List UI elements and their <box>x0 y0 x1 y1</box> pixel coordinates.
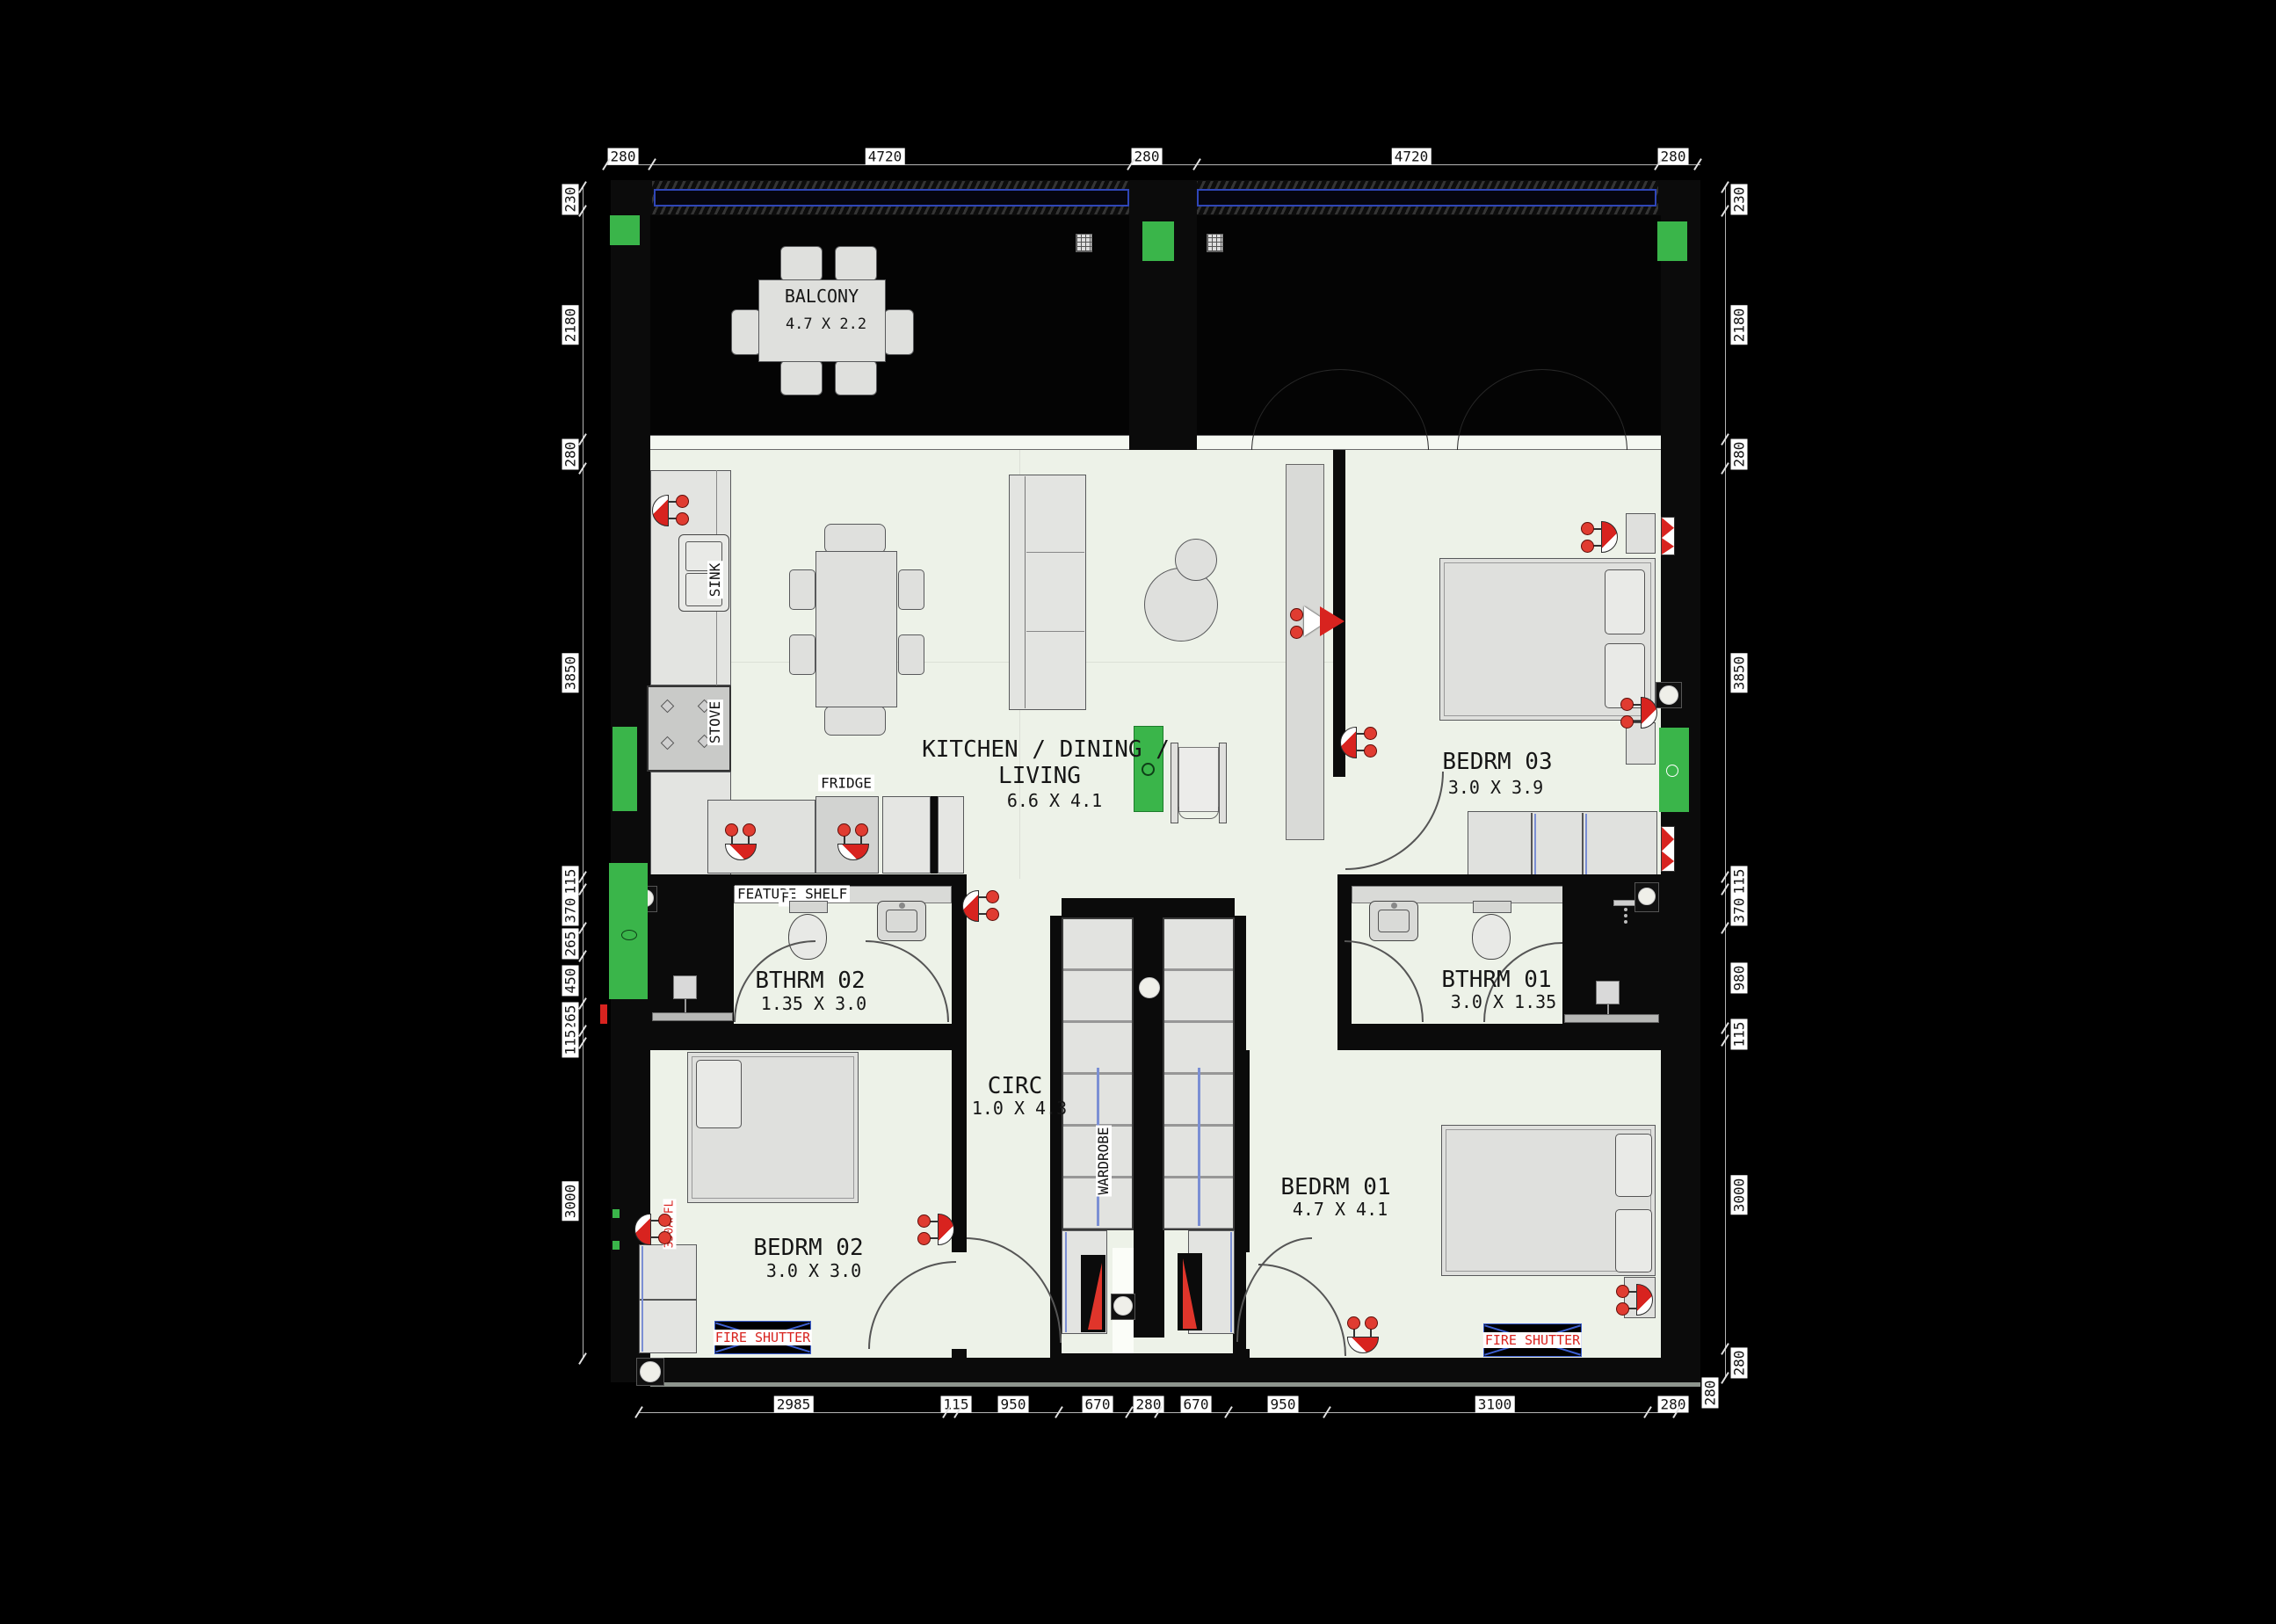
dim-label: 280 <box>1731 439 1748 470</box>
stove-label: STOVE <box>707 700 723 745</box>
wall-fan-icon <box>1659 685 1678 705</box>
wardrobe-blue-line <box>1585 814 1587 875</box>
wall-bedrm01-left <box>1235 1349 1250 1358</box>
dim-label: 3000 <box>1731 1176 1748 1215</box>
appliance-unit <box>882 796 931 874</box>
dim-label: 370 <box>1731 895 1748 926</box>
nightstand <box>1626 513 1656 554</box>
wardrobe-divider <box>1531 813 1533 877</box>
riser-circle <box>1142 763 1155 776</box>
sprinkler-icon <box>1577 518 1618 555</box>
green-marker <box>610 215 640 245</box>
dim-label: 280 <box>1702 1378 1719 1409</box>
dining-table <box>815 551 897 707</box>
dim-label: 230 <box>1731 185 1748 215</box>
dim-label: 370 <box>562 895 579 926</box>
dim-label: 950 <box>998 1396 1029 1413</box>
sink-basin <box>1378 910 1410 932</box>
dining-chair <box>824 706 886 736</box>
room-dims-living: 6.6 X 4.1 <box>1007 790 1102 811</box>
shaft-fixture <box>1596 981 1620 1004</box>
wardrobe-blue-line <box>1065 1232 1067 1332</box>
pillow <box>1605 569 1645 634</box>
dining-chair <box>898 634 924 675</box>
dim-line-right <box>1725 187 1726 1378</box>
entry-fan-icon <box>1113 1296 1133 1316</box>
wall-bedrm01-left <box>1235 1050 1250 1252</box>
room-label-bedrm03: BEDRM 03 <box>1442 749 1552 775</box>
balcony-chair <box>835 360 877 395</box>
sofa <box>1009 475 1086 710</box>
tap-icon <box>1391 903 1397 909</box>
fire-shutter: FIRE SHUTTER <box>1483 1323 1582 1357</box>
wardrobe-bedrm03 <box>1468 811 1657 879</box>
room-dims-bedrm02: 3.0 X 3.0 <box>766 1260 861 1281</box>
appliance-divider <box>931 796 938 874</box>
dim-label: 4720 <box>1392 149 1432 165</box>
balcony-railing <box>1197 189 1656 207</box>
sprinkler-icon <box>1340 724 1381 761</box>
dim-label: 2180 <box>562 306 579 345</box>
dim-label: 115 <box>562 1027 579 1058</box>
armchair-front <box>1178 807 1219 819</box>
fridge-label: FRIDGE <box>818 775 874 792</box>
sofa-back-line <box>1025 476 1026 708</box>
wall-bath-bottom-left <box>611 1024 958 1050</box>
sprinkler-icon <box>652 492 692 529</box>
room-dims-bthrm02: 1.35 X 3.0 <box>761 993 866 1014</box>
corner-fan-icon <box>640 1361 661 1382</box>
dim-label: 265 <box>562 929 579 960</box>
wardrobe-blue-line <box>1534 814 1536 875</box>
dim-label: 4720 <box>866 149 905 165</box>
wardrobe-label: WARDROBE <box>1096 1125 1112 1196</box>
pillow <box>1615 1209 1652 1272</box>
fire-shutter: FIRE SHUTTER <box>714 1321 811 1354</box>
dim-label: 3100 <box>1475 1396 1515 1413</box>
dim-label: 3850 <box>1731 654 1748 693</box>
wardrobe-blue-line <box>641 1246 643 1352</box>
room-label-balcony: BALCONY <box>785 286 859 307</box>
dim-label: 280 <box>1658 149 1689 165</box>
room-dims-bedrm01: 4.7 X 4.1 <box>1293 1199 1388 1220</box>
room-dims-balcony: 4.7 X 2.2 <box>786 315 866 333</box>
sprinkler-icon <box>1345 1313 1381 1353</box>
dim-label: 115 <box>562 866 579 897</box>
armchair-seat <box>1178 747 1219 812</box>
sprinkler-icon <box>962 888 1003 924</box>
room-label-bedrm02: BEDRM 02 <box>753 1235 863 1261</box>
room-label-living-1: KITCHEN / DINING / <box>922 736 1170 763</box>
feature-shelf-label: FEATURE SHELF <box>735 886 850 903</box>
sprinkler-icon <box>722 820 759 860</box>
dim-label: 670 <box>1083 1396 1113 1413</box>
dim-label: 2180 <box>1731 306 1748 345</box>
dim-line-left <box>583 187 583 1359</box>
sliding-panel <box>1286 464 1324 840</box>
dim-label: 115 <box>1731 866 1748 897</box>
sprinkler-icon <box>634 1211 675 1248</box>
entry-threshold <box>1062 1353 1233 1382</box>
shaft-grille <box>1564 1014 1659 1023</box>
wall-bottom-sill <box>650 1382 1700 1387</box>
balcony-chair <box>780 360 823 395</box>
red-dot <box>1290 608 1303 621</box>
room-dims-bedrm03: 3.0 X 3.9 <box>1448 777 1543 798</box>
wall-wardrobe-left <box>1050 916 1062 1358</box>
shaft-fixture <box>673 975 697 999</box>
balcony-chair <box>884 309 914 355</box>
shaft-fan-icon <box>1139 977 1160 998</box>
shower-stem <box>1624 908 1627 924</box>
floor-drain-grid-icon <box>1207 234 1223 252</box>
dining-chair <box>898 569 924 610</box>
green-marker <box>1142 221 1174 261</box>
damper-marker-icon <box>1661 826 1675 872</box>
pillow <box>1615 1134 1652 1197</box>
burner <box>661 700 675 714</box>
wall-wardrobe-top <box>1062 898 1235 917</box>
damper-marker-icon <box>1661 517 1675 555</box>
dim-label: 230 <box>562 185 579 215</box>
wardrobe-blue-line <box>1230 1232 1232 1332</box>
appliance-unit <box>938 796 964 874</box>
floor-drain-grid-icon <box>1076 234 1092 252</box>
sprinkler-icon <box>835 820 872 860</box>
green-marker-circle <box>1666 765 1678 777</box>
dim-label: 115 <box>1731 1019 1748 1050</box>
green-marker <box>612 727 637 811</box>
dim-label: 280 <box>562 439 579 470</box>
sink-basin <box>886 910 917 932</box>
dim-label: 980 <box>1731 963 1748 994</box>
dim-label: 280 <box>1658 1396 1689 1413</box>
side-table-round <box>1175 539 1217 581</box>
grid-line <box>650 662 1333 663</box>
red-tick <box>600 1004 607 1024</box>
side-table-round <box>1144 568 1218 642</box>
armchair-side <box>1219 743 1227 823</box>
green-tick <box>612 1241 620 1250</box>
room-label-circ: CIRC <box>988 1073 1043 1099</box>
balcony-chair <box>780 246 823 281</box>
room-label-bthrm02: BTHRM 02 <box>755 968 865 994</box>
shaft-fixture-stem <box>685 999 686 1013</box>
room-label-bedrm01: BEDRM 01 <box>1280 1174 1390 1200</box>
armchair-side <box>1171 743 1178 823</box>
dining-chair <box>789 634 815 675</box>
wall-bedrm02-right <box>952 1349 967 1358</box>
room-label-living-2: LIVING <box>998 763 1081 789</box>
wall-fan-icon <box>1638 888 1656 905</box>
toilet-bowl <box>1472 914 1511 960</box>
red-dot <box>1290 626 1303 639</box>
pillow <box>696 1060 742 1128</box>
fire-shutter-label: FIRE SHUTTER <box>1483 1332 1582 1348</box>
dim-label: 950 <box>1268 1396 1299 1413</box>
dim-label: 2985 <box>774 1396 814 1413</box>
room-dims-circ: 1.0 X 4.3 <box>972 1098 1067 1119</box>
dim-label: 280 <box>1132 149 1163 165</box>
floor-plan-canvas: 280 4720 280 4720 280 230 2180 280 3850 … <box>0 0 2276 1624</box>
dining-chair <box>789 569 815 610</box>
sprinkler-icon <box>1613 1281 1653 1318</box>
shaft-grille <box>652 1012 733 1021</box>
dim-label: 450 <box>562 966 579 997</box>
flow-arrow-icon <box>1320 606 1345 636</box>
fire-shutter-label: FIRE SHUTTER <box>714 1330 812 1345</box>
wardrobe-divider <box>639 1299 697 1301</box>
wall-bath-bottom-right <box>1345 1024 1700 1050</box>
dim-label: 3850 <box>562 654 579 693</box>
burner <box>661 736 675 750</box>
sink-label: SINK <box>707 562 723 599</box>
dim-label: 280 <box>1731 1348 1748 1379</box>
sofa-cushion-line <box>1026 631 1084 632</box>
service-shaft-left <box>650 883 734 1026</box>
room-label-bthrm01: BTHRM 01 <box>1441 967 1551 993</box>
balcony-railing <box>654 189 1129 207</box>
toilet-tank <box>1473 901 1511 913</box>
room-dims-bthrm01: 3.0 X 1.35 <box>1451 991 1556 1012</box>
sprinkler-icon <box>914 1211 954 1248</box>
dim-label: 670 <box>1181 1396 1212 1413</box>
balcony-chair <box>731 309 761 355</box>
wardrobe-blue-line <box>1198 1068 1200 1226</box>
sprinkler-icon <box>1617 694 1657 731</box>
dim-label: 3000 <box>562 1182 579 1222</box>
green-tick <box>612 1209 620 1218</box>
sofa-cushion-line <box>1026 552 1084 553</box>
dining-chair <box>824 524 886 554</box>
green-marker <box>1657 221 1687 261</box>
tap-icon <box>899 903 905 909</box>
wall-pier-base <box>1129 435 1197 450</box>
green-marker-circle <box>621 930 637 940</box>
dim-label: 280 <box>608 149 639 165</box>
wardrobe-divider <box>1582 813 1584 877</box>
balcony-chair <box>835 246 877 281</box>
toilet-tank <box>789 901 828 913</box>
